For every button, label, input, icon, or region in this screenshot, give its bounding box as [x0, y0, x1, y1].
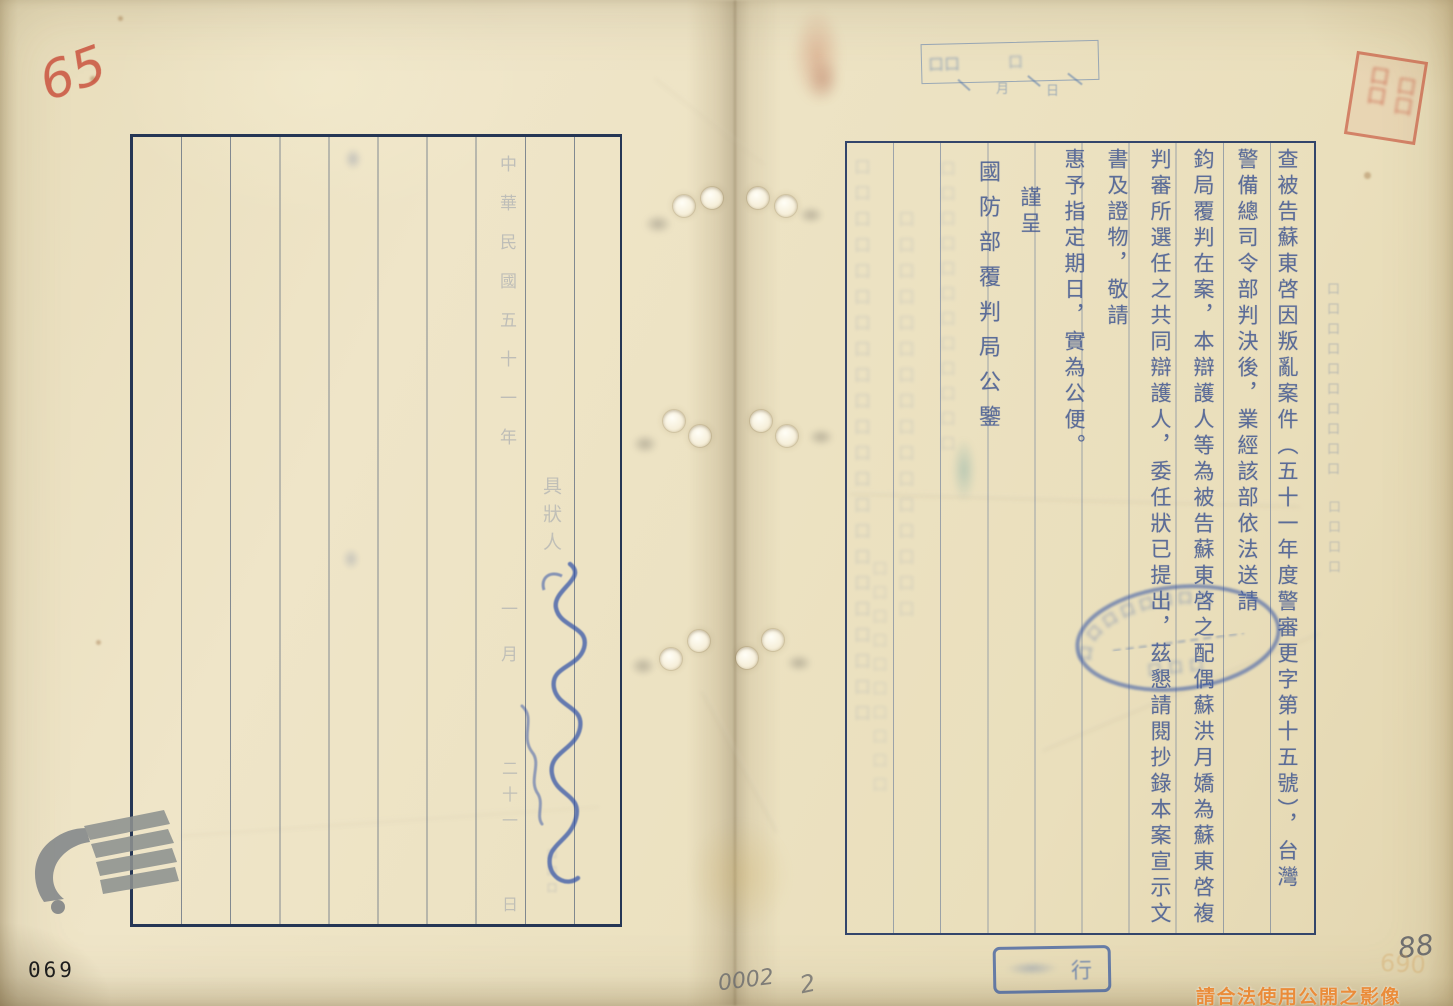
punch-hole: [663, 410, 685, 432]
bottom-stamp-box: 行: [993, 945, 1112, 994]
punch-hole: [775, 195, 797, 217]
archives-logo-watermark: [28, 804, 192, 916]
crumple-mark: [798, 206, 824, 224]
receipt-stamp-text: 口口: [928, 50, 961, 75]
pencil-number-small: 2: [797, 969, 818, 1000]
punch-hole: [736, 647, 758, 669]
crumple-mark: [630, 656, 656, 676]
crumple-mark: [632, 434, 658, 454]
punch-hole: [750, 410, 772, 432]
punch-hole: [701, 187, 723, 209]
petition-salute: 謹呈: [1015, 186, 1045, 238]
petition-column-2: 警備總司令部判決後，業經該部依法送請: [1232, 148, 1262, 616]
red-pencil-number: 65: [32, 34, 115, 113]
punch-hole: [689, 425, 711, 447]
form-margin-label: 口口口口口口口口口口: [1322, 282, 1341, 482]
paper-speck: [1364, 172, 1371, 179]
paper-speck: [96, 640, 101, 645]
date-year: 中華民國五十一年: [494, 155, 519, 467]
petitioner-label: 具狀人: [538, 476, 565, 560]
ink-smudge: [952, 438, 976, 502]
bleedthrough-mark: [344, 148, 362, 170]
punch-hole: [776, 425, 798, 447]
archive-serial-number: 069: [28, 958, 75, 982]
svg-text:口口口口口口口口: 口口口口口口口口: [1070, 585, 1223, 663]
copyright-watermark: 請合法使用公開之影像: [1196, 982, 1401, 1006]
punch-hole: [762, 629, 784, 651]
petition-addressee: 國防部覆判局公鑒: [971, 160, 1003, 440]
punch-hole: [660, 648, 682, 670]
receipt-day-label: 日: [1046, 80, 1059, 99]
red-seal: 口口 口口: [1344, 51, 1428, 145]
paper-stain: [806, 58, 840, 102]
petition-column-1: 查被告蘇東啓因叛亂案件（五十一年度警審更字第十五號），台灣: [1272, 148, 1302, 892]
receipt-stamp-text: 口: [1008, 51, 1024, 72]
bleedthrough-text: 口口口口口口口口口口口口: [938, 160, 962, 460]
bleedthrough-text: 口口口口口口口口口口: [870, 560, 894, 800]
red-seal-text: 口口: [1387, 74, 1422, 118]
petition-column-3: 鈞局覆判在案，本辯護人等為被告蘇東啓之配偶蘇洪月嬌為蘇東啓複: [1188, 148, 1218, 928]
bleedthrough-text: 口口口口口口口口口口口口口口口口: [896, 210, 921, 626]
punch-hole: [747, 187, 769, 209]
petition-column-4: 判審所選任之共同辯護人，委任狀已提出，茲懇請閱抄錄本案宣示文: [1145, 148, 1175, 928]
paper-stain: [690, 820, 790, 930]
bleedthrough-mark: [342, 548, 360, 570]
document-scan: 口口口口口口口口口口口口口口口口口口口口口口 口口口口口口口口口口口口口口口口 …: [0, 0, 1453, 1006]
petition-column-6: 惠予指定期日，實為公便。: [1059, 148, 1089, 460]
bottom-stamp-char: 行: [1071, 954, 1093, 984]
punch-hole: [688, 630, 710, 652]
bottom-stamp-smudge: [1006, 961, 1058, 976]
petition-column-5: 書及證物，敬請: [1102, 148, 1132, 330]
oval-stamp-bottom-text: 口口口: [1146, 655, 1211, 679]
faint-number-right: 690: [1379, 949, 1426, 979]
crumple-mark: [808, 428, 834, 446]
oval-receipt-stamp: 口口口口口口口口 口口口: [1062, 567, 1293, 709]
paper-speck: [118, 16, 123, 21]
receipt-month-label: 月: [996, 78, 1009, 97]
crumple-mark: [644, 214, 672, 234]
crumple-mark: [786, 654, 812, 672]
handwritten-signature: [492, 556, 612, 896]
date-ri: 日: [496, 896, 520, 912]
oval-stamp-arc-text: 口口口口口口口口: [1070, 585, 1223, 663]
punch-hole: [673, 195, 695, 217]
form-margin-label: 口口口口: [1323, 500, 1342, 580]
